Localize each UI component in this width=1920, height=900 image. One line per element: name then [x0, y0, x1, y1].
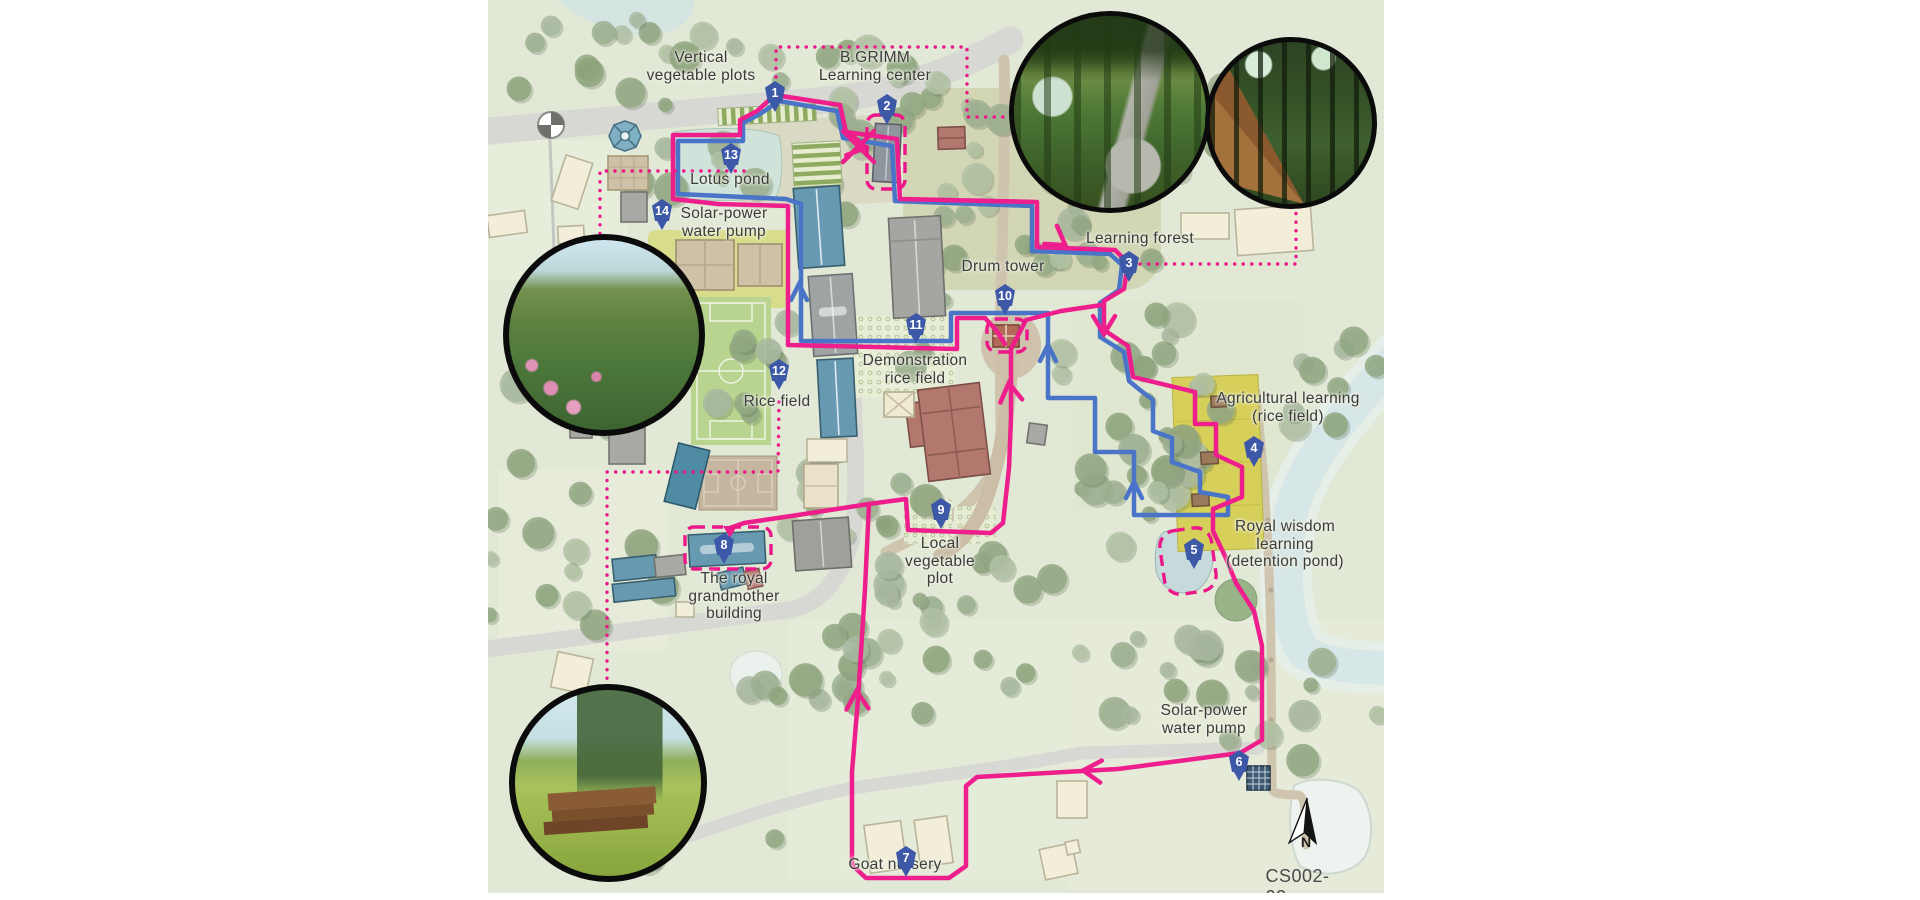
marker-pin-8[interactable]: 8 — [714, 533, 734, 564]
solar-pump-complex — [676, 240, 782, 290]
marker-pin-13[interactable]: 13 — [721, 143, 741, 174]
photo-inset-learning-center-garden[interactable] — [1009, 11, 1211, 213]
site-plan-canvas: { "title_context": "B.GRIMM learning cen… — [0, 0, 1920, 900]
drawing-code: CS002-02 — [1266, 866, 1345, 893]
marker-number: 12 — [772, 364, 786, 378]
roundabout — [538, 112, 564, 138]
marker-number: 13 — [724, 148, 738, 162]
marker-number: 2 — [884, 99, 891, 113]
label-royal-wisdom-learning: Royal wisdomlearning(detention pond) — [1226, 518, 1344, 571]
label-learning-forest: Learning forest — [1086, 230, 1194, 248]
marker-number: 1 — [772, 86, 779, 100]
marker-pin-9[interactable]: 9 — [931, 498, 951, 529]
label-solar-pump-bottom: Solar-powerwater pump — [1161, 702, 1248, 737]
label-royal-grandmother: The royalgrandmotherbuilding — [688, 570, 779, 623]
marker-pin-6[interactable]: 6 — [1229, 750, 1249, 781]
marker-pin-10[interactable]: 10 — [995, 284, 1015, 315]
marker-pin-12[interactable]: 12 — [769, 359, 789, 390]
marker-pin-5[interactable]: 5 — [1184, 538, 1204, 569]
solar-panel-grid — [1247, 766, 1270, 790]
label-agricultural-learning: Agricultural learning(rice field) — [1216, 390, 1359, 425]
basketball-court — [699, 456, 777, 510]
label-rice-field: Rice field — [744, 393, 811, 411]
marker-pin-3[interactable]: 3 — [1119, 251, 1139, 282]
label-drum-tower: Drum tower — [961, 258, 1044, 276]
marker-pin-2[interactable]: 2 — [877, 94, 897, 125]
marker-number: 3 — [1126, 256, 1133, 270]
marker-number: 9 — [938, 503, 945, 517]
marker-number: 14 — [655, 204, 669, 218]
label-local-vegetable-plot: Localvegetableplot — [905, 535, 975, 588]
marker-number: 10 — [998, 289, 1012, 303]
north-label: N — [1301, 834, 1311, 850]
marker-number: 8 — [721, 538, 728, 552]
photo-inset-forest-boardwalk[interactable] — [1205, 37, 1377, 209]
octagon-pavilion — [609, 121, 641, 151]
photo-inset-rice-field-boardwalk[interactable] — [509, 684, 707, 882]
marker-number: 4 — [1251, 441, 1258, 455]
marker-pin-1[interactable]: 1 — [765, 81, 785, 112]
tan-courts — [804, 464, 838, 508]
label-demonstration-rice-field: Demonstrationrice field — [863, 352, 968, 387]
label-bgrimm-learning-center: B.GRIMMLearning center — [819, 49, 931, 84]
photo-inset-lotus-pond-walk[interactable] — [503, 234, 705, 436]
marker-pin-4[interactable]: 4 — [1244, 436, 1264, 467]
marker-number: 7 — [903, 851, 910, 865]
marker-pin-7[interactable]: 7 — [896, 846, 916, 877]
cream-pavilion — [884, 392, 914, 417]
label-vertical-vegetable-plots: Verticalvegetable plots — [647, 49, 756, 84]
label-goat-nursery: Goat nursery — [848, 856, 941, 874]
marker-number: 6 — [1236, 755, 1243, 769]
marker-pin-11[interactable]: 11 — [906, 313, 926, 344]
marker-number: 11 — [909, 318, 922, 332]
marker-number: 5 — [1191, 543, 1198, 557]
marker-pin-14[interactable]: 14 — [652, 199, 672, 230]
label-solar-pump-top: Solar-powerwater pump — [681, 205, 768, 240]
